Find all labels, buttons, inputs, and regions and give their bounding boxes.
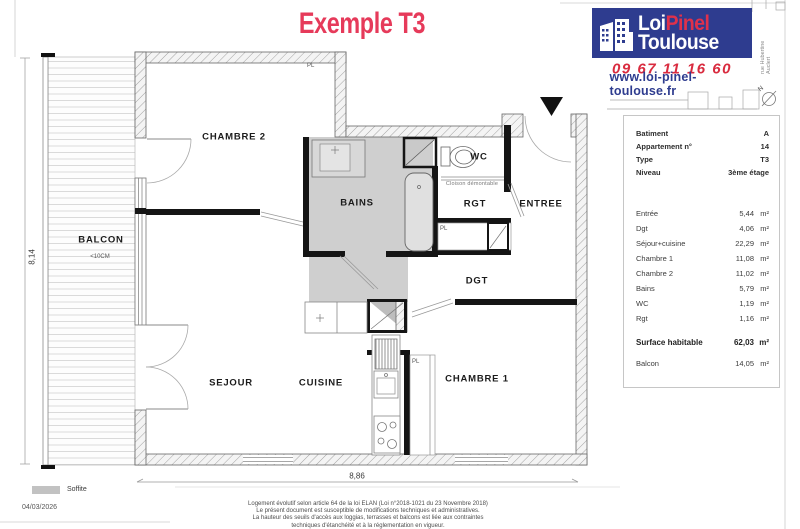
area-row: Dgt 4,06 m² xyxy=(636,221,769,236)
area-unit: m² xyxy=(754,281,769,296)
room-label-chambre1: CHAMBRE 1 xyxy=(445,374,509,385)
area-unit: m² xyxy=(754,221,769,236)
buildings-icon xyxy=(598,14,634,52)
info-label: Appartement n° xyxy=(636,140,692,153)
disclaimer-line: Logement évolutif selon article 64 de la… xyxy=(148,501,588,508)
info-label: Batiment xyxy=(636,127,668,140)
entry-arrow-icon xyxy=(540,97,563,116)
area-unit: m² xyxy=(754,266,769,281)
area-unit: m² xyxy=(754,311,769,326)
room-label-chambre2: CHAMBRE 2 xyxy=(202,132,266,143)
area-unit: m² xyxy=(754,236,769,251)
surface-habitable-row: Surface habitable 62,03 m² xyxy=(636,335,769,350)
area-value: 5,44 xyxy=(720,206,754,221)
area-unit: m² xyxy=(754,296,769,311)
disclaimer-line: Le présent document est susceptible de m… xyxy=(148,508,588,515)
info-label: Type xyxy=(636,153,653,166)
info-label: Niveau xyxy=(636,166,661,179)
area-label: Séjour+cuisine xyxy=(636,236,720,251)
total-unit: m² xyxy=(754,335,769,350)
room-label-wc: WC xyxy=(470,152,487,163)
area-row: Bains 5,79 m² xyxy=(636,281,769,296)
total-value: 62,03 xyxy=(720,335,754,350)
legal-disclaimer: Logement évolutif selon article 64 de la… xyxy=(148,501,588,529)
info-row-appartement: Appartement n° 14 xyxy=(636,140,769,153)
room-label-dgt: DGT xyxy=(466,276,488,287)
dimension-height: 8,14 xyxy=(28,249,37,265)
area-label: Chambre 1 xyxy=(636,251,720,266)
info-row-batiment: Batiment A xyxy=(636,127,769,140)
area-unit: m² xyxy=(754,251,769,266)
area-value: 1,16 xyxy=(720,311,754,326)
balcon-label: Balcon xyxy=(636,356,720,371)
closet-label-pl-3: PL xyxy=(412,359,419,365)
north-compass-icon xyxy=(762,91,776,106)
balcon-row: Balcon 14,05 m² xyxy=(636,356,769,371)
soffite-legend-swatch xyxy=(32,486,60,494)
area-label: Dgt xyxy=(636,221,720,236)
disclaimer-line: La hauteur des seuils d'accès aux loggia… xyxy=(148,515,588,522)
info-value: 14 xyxy=(761,140,769,153)
room-label-bains: BAINS xyxy=(340,198,374,209)
room-label-rgt: RGT xyxy=(464,199,486,210)
area-unit: m² xyxy=(754,206,769,221)
brand-website: www.loi-pinel-toulouse.fr xyxy=(610,70,737,98)
area-row: Chambre 2 11,02 m² xyxy=(636,266,769,281)
area-label: Chambre 2 xyxy=(636,266,720,281)
balcon-unit: m² xyxy=(754,356,769,371)
closet-label-pl-1: PL xyxy=(307,63,314,69)
balcon-value: 14,05 xyxy=(720,356,754,371)
areas-table: Entrée 5,44 m² Dgt 4,06 m² Séjour+cuisin… xyxy=(636,206,769,326)
plan-date: 04/03/2026 xyxy=(22,504,57,511)
area-value: 1,19 xyxy=(720,296,754,311)
floor-plan-page: Exemple T3 BALCON <10CM CHAMBRE 2 BAINS … xyxy=(0,0,800,529)
area-label: Rgt xyxy=(636,311,720,326)
brand-logo: LoiPinel Toulouse xyxy=(592,8,752,58)
brand-name-toulouse: Toulouse xyxy=(638,33,719,52)
info-value: 3ème étage xyxy=(728,166,769,179)
room-label-entree: ENTREE xyxy=(519,199,562,210)
area-value: 22,29 xyxy=(720,236,754,251)
room-label-cuisine: CUISINE xyxy=(299,378,343,389)
disclaimer-line: techniques d'étanchéité et à la réglemen… xyxy=(148,523,588,529)
page-title: Exemple T3 xyxy=(299,7,425,41)
soffite-legend-label: Soffite xyxy=(67,486,87,493)
info-row-type: Type T3 xyxy=(636,153,769,166)
area-row: Rgt 1,16 m² xyxy=(636,311,769,326)
info-value: T3 xyxy=(760,153,769,166)
dimension-width: 8,86 xyxy=(349,472,365,481)
area-row: WC 1,19 m² xyxy=(636,296,769,311)
room-label-sejour: SEJOUR xyxy=(209,378,253,389)
street-label: rue Hubertine Auclert xyxy=(760,40,772,74)
info-row-niveau: Niveau 3ème étage xyxy=(636,166,769,179)
area-value: 4,06 xyxy=(720,221,754,236)
area-value: 5,79 xyxy=(720,281,754,296)
brand-name: LoiPinel Toulouse xyxy=(638,14,719,53)
area-row: Entrée 5,44 m² xyxy=(636,206,769,221)
area-value: 11,02 xyxy=(720,266,754,281)
area-row: Séjour+cuisine 22,29 m² xyxy=(636,236,769,251)
partition-note: Cloison démontable xyxy=(446,181,498,187)
area-label: WC xyxy=(636,296,720,311)
area-row: Chambre 1 11,08 m² xyxy=(636,251,769,266)
room-label-balcon: BALCON xyxy=(78,235,123,246)
apartment-info-panel: Batiment A Appartement n° 14 Type T3 Niv… xyxy=(623,115,780,388)
total-label: Surface habitable xyxy=(636,335,720,350)
info-value: A xyxy=(764,127,769,140)
balcony-deck xyxy=(41,53,135,469)
closet-label-pl-2: PL xyxy=(440,226,447,232)
area-value: 11,08 xyxy=(720,251,754,266)
balcony-height-note: <10CM xyxy=(90,254,110,260)
area-label: Entrée xyxy=(636,206,720,221)
area-label: Bains xyxy=(636,281,720,296)
